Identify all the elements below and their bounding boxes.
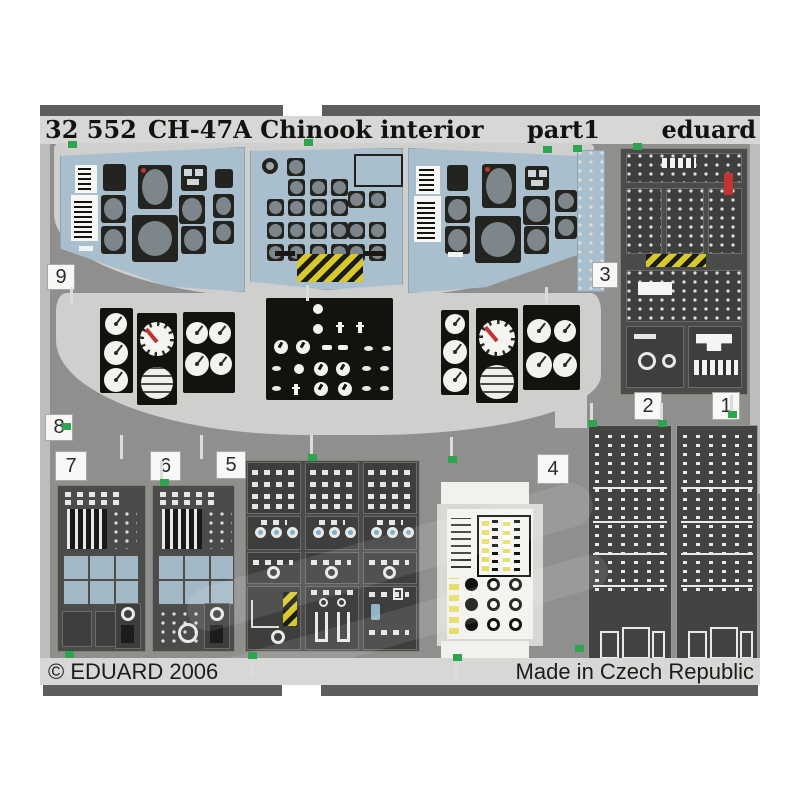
- vent-grille: [162, 509, 202, 549]
- plain-gauge: [104, 368, 128, 392]
- instrument-hole: [312, 181, 325, 194]
- origin-text: Made in Czech Republic: [516, 658, 754, 685]
- console-sub-panel: [62, 611, 92, 647]
- instrument-hole: [371, 193, 384, 206]
- symbol-notch: [318, 384, 324, 391]
- indicator-cluster: [208, 511, 232, 549]
- instrument-bezel: [475, 216, 521, 263]
- symbol-dial: [313, 304, 323, 314]
- attachment-tab-mark: [308, 454, 317, 461]
- instrument-hole: [312, 224, 325, 237]
- instrument-hole: [333, 201, 346, 214]
- fret-stem: [545, 287, 548, 303]
- instrument-hole: [104, 229, 123, 251]
- symbol-figure: [336, 325, 344, 327]
- part-number-tab-7: 7: [56, 452, 86, 480]
- switch-bank: [247, 462, 301, 514]
- instrument-hole: [333, 224, 346, 237]
- breaker-divider: [681, 553, 753, 555]
- instrument-bezel: [288, 179, 305, 196]
- rotary-knob: [313, 527, 324, 538]
- instrument-bezel: [331, 199, 348, 216]
- instrument-hole: [558, 193, 574, 209]
- attachment-tab-mark: [65, 651, 74, 658]
- gauge-hub: [453, 378, 457, 382]
- switch-row: [368, 494, 412, 499]
- gauge-hub: [114, 351, 118, 355]
- part-number-label: 7: [65, 455, 76, 477]
- instrument-hole: [527, 229, 546, 251]
- radio-window: [195, 169, 203, 176]
- attachment-tab-mark: [160, 479, 169, 486]
- fret-stem: [250, 663, 253, 677]
- instrument-bezel: [445, 196, 470, 223]
- plain-gauge: [526, 352, 552, 378]
- instrument-bezel: [101, 226, 126, 254]
- instrument-dial-strip: [441, 310, 469, 395]
- attachment-tab-mark: [62, 423, 71, 430]
- instrument-bezel: [524, 226, 549, 254]
- compass-gauge: [140, 322, 174, 356]
- attachment-tab-mark: [658, 420, 667, 427]
- instrument-bezel: [213, 194, 234, 218]
- placard-dial: [487, 618, 500, 631]
- attachment-tab-mark: [588, 420, 597, 427]
- connector-comb: [694, 360, 738, 375]
- symbol-mark: [364, 346, 373, 351]
- instrument-bezel: [348, 191, 365, 208]
- bottom-frame-bar-right: [321, 685, 758, 696]
- radio-window: [539, 170, 547, 177]
- instrument-hole: [182, 198, 202, 221]
- console-sub-panel: [626, 270, 742, 322]
- header-strip: 32 552 CH-47A Chinook interior part1 edu…: [40, 116, 760, 144]
- switch-bank: [305, 462, 359, 514]
- symbol-dial: [314, 362, 328, 376]
- switch-row: [368, 482, 412, 487]
- gauge-hub: [537, 329, 541, 333]
- instrument-bezel: [288, 199, 305, 216]
- label-bracket: [652, 631, 665, 659]
- instrument-hole: [526, 199, 547, 222]
- gauge-hub: [563, 329, 567, 333]
- footer-strip: © EDUARD 2006 Made in Czech Republic: [40, 658, 760, 685]
- switch-row: [310, 482, 354, 487]
- switch-bank: [247, 516, 301, 550]
- breaker-tick-field: [676, 431, 758, 596]
- instrument-bezel: [369, 222, 386, 239]
- knob-cluster: [115, 603, 141, 649]
- symbol-mark: [380, 366, 389, 371]
- radio-window: [184, 169, 192, 176]
- instrument-bezel: [555, 190, 577, 212]
- attachment-tab-mark: [543, 146, 552, 153]
- instrument-hole: [350, 224, 363, 237]
- copyright-text: © EDUARD 2006: [48, 658, 218, 685]
- breaker-divider: [593, 553, 667, 555]
- panel-outline: [354, 154, 403, 187]
- symbol-dial: [314, 382, 328, 396]
- instrument-bezel: [310, 179, 327, 196]
- instrument-bezel: [215, 169, 233, 188]
- gauge-hub: [563, 363, 567, 367]
- rotary-knob: [262, 158, 278, 174]
- label-bracket: [688, 631, 707, 659]
- plain-gauge: [210, 353, 232, 375]
- instrument-dial-strip: [183, 312, 235, 393]
- part-number-tab-9: 9: [48, 265, 74, 289]
- symbol-notch: [278, 342, 284, 349]
- part-number-label: 9: [55, 266, 66, 288]
- instrument-hole: [486, 168, 512, 204]
- instrument-bezel: [523, 196, 550, 225]
- switch-row: [252, 494, 296, 499]
- vent-grille: [67, 509, 107, 549]
- instrument-hole: [333, 181, 346, 194]
- symbol-dial: [294, 364, 304, 374]
- instrument-bezel: [310, 199, 327, 216]
- instrument-bezel: [445, 226, 470, 254]
- instrument-dial-strip: [476, 308, 518, 403]
- gauge-hub: [537, 363, 541, 367]
- knob-center: [332, 530, 337, 535]
- radio-window: [63, 555, 139, 605]
- part-number-tab-2: 2: [635, 393, 661, 419]
- knob-ring: [121, 607, 135, 621]
- indicator-cluster: [113, 511, 137, 549]
- switch-slot: [634, 334, 656, 339]
- product-photo: 32 552 CH-47A Chinook interior part1 edu…: [40, 105, 760, 695]
- part-number-label: 3: [599, 264, 610, 286]
- brand-logo: eduard: [662, 116, 756, 144]
- symbol-mark: [322, 345, 332, 350]
- window-grid: [183, 555, 185, 605]
- instrument-bezel: [447, 165, 468, 191]
- instrument-bezel: [555, 216, 577, 239]
- fret-stem: [306, 285, 309, 301]
- instrument-dial-strip: [523, 305, 580, 390]
- instrument-bezel: [179, 195, 205, 224]
- catalog-number: 32 552: [45, 116, 137, 144]
- placard-dial: [509, 618, 522, 631]
- switch-row: [319, 520, 345, 525]
- switch-row: [368, 504, 412, 509]
- warning-dot: [141, 168, 146, 173]
- toggle-switch-row: [662, 158, 696, 168]
- console-sub-panel: [688, 326, 742, 388]
- instrument-hole: [184, 229, 203, 251]
- plain-gauge: [443, 368, 467, 392]
- console-sub-panel: [666, 188, 704, 254]
- attachment-tab-mark: [304, 139, 313, 146]
- instrument-hole: [142, 169, 168, 205]
- gauge-hub: [218, 331, 222, 335]
- plain-gauge: [553, 353, 577, 377]
- instrument-hole: [290, 224, 303, 237]
- compass-gauge: [479, 320, 515, 356]
- rotary-knob: [255, 527, 266, 538]
- fret-stem: [455, 665, 458, 679]
- label-bracket: [600, 631, 619, 659]
- console-sub-panel: [708, 188, 742, 254]
- overhead-console-panel: [620, 148, 748, 395]
- attachment-tab-mark: [453, 654, 462, 661]
- window-grid: [88, 555, 90, 605]
- attachment-tab-mark: [575, 645, 584, 652]
- symbol-figure: [338, 322, 342, 333]
- slider-row: [65, 500, 123, 505]
- switch-row: [377, 520, 403, 525]
- part-number-tab-6: 6: [151, 452, 180, 480]
- window-grid: [63, 579, 139, 581]
- breaker-divider: [681, 585, 753, 587]
- label-bracket: [740, 631, 753, 659]
- slider-row: [160, 492, 218, 497]
- data-placard: [416, 166, 440, 194]
- part-number-label: 2: [642, 395, 653, 417]
- warning-lever: [724, 173, 733, 195]
- data-placard: [414, 196, 441, 242]
- instrument-dial-strip: [137, 313, 177, 405]
- placard-strip: [275, 251, 295, 256]
- plain-gauge: [185, 352, 209, 376]
- attachment-tab-mark: [248, 652, 257, 659]
- breaker-divider: [593, 585, 667, 587]
- instrument-hole: [216, 197, 231, 215]
- instrument-bezel: [310, 222, 327, 239]
- horizon-gauge: [141, 367, 173, 399]
- instrument-hole: [269, 201, 282, 214]
- product-title: CH-47A Chinook interior: [148, 116, 484, 144]
- fret-stem: [67, 663, 70, 677]
- switch-row: [310, 470, 354, 475]
- knob-ring: [337, 598, 346, 607]
- console-panel-7: [57, 485, 146, 652]
- symbol-mark: [362, 386, 371, 391]
- symbol-notch: [340, 364, 346, 371]
- part-number-label: 5: [225, 454, 236, 476]
- switch-bank: [363, 462, 417, 514]
- data-placard: [75, 165, 97, 193]
- knob-center: [258, 530, 263, 535]
- symbol-mark: [380, 386, 389, 391]
- knob-ring: [662, 354, 676, 368]
- rotary-knob: [287, 527, 298, 538]
- breaker-divider: [593, 521, 667, 523]
- symbol-dial: [296, 340, 310, 354]
- symbol-dial: [313, 324, 323, 334]
- plain-gauge: [209, 322, 231, 344]
- fret-stem: [200, 435, 203, 459]
- gauge-hub: [453, 322, 457, 326]
- instrument-hole: [558, 219, 574, 236]
- radio-window: [528, 170, 536, 177]
- part-number-label: 4: [547, 458, 558, 480]
- gauge-hub: [114, 322, 118, 326]
- instrument-bezel: [132, 215, 178, 262]
- switch-slot: [79, 246, 93, 251]
- plain-gauge: [527, 319, 551, 343]
- instrument-bezel: [103, 164, 126, 191]
- knob-center: [290, 530, 295, 535]
- knob-center: [316, 530, 321, 535]
- part-number-tab-3: 3: [593, 263, 617, 287]
- instrument-hole: [448, 229, 467, 251]
- data-placard: [71, 195, 98, 241]
- console-sub-panel: [626, 326, 684, 388]
- switch-block: [121, 625, 134, 643]
- plain-gauge: [104, 341, 128, 365]
- switch-slot: [448, 252, 463, 257]
- switch-row: [252, 504, 296, 509]
- instrument-bezel: [267, 199, 284, 216]
- placard-strip: [364, 251, 386, 256]
- knob-center: [348, 530, 353, 535]
- instrument-hole: [448, 199, 467, 220]
- fret-edge-left: [40, 144, 50, 658]
- symbol-notch: [342, 384, 348, 391]
- instrument-hole: [481, 222, 515, 257]
- window-grid: [114, 555, 116, 605]
- part-label: part1: [527, 116, 600, 144]
- symbol-mark: [362, 366, 371, 371]
- plain-gauge: [445, 314, 465, 334]
- part-number-tab-4: 4: [538, 455, 568, 483]
- fret-stem: [120, 435, 123, 459]
- symbol-notch: [318, 364, 324, 371]
- symbol-dial: [338, 382, 352, 396]
- radio-window: [531, 180, 543, 186]
- instrument-hole: [216, 224, 231, 241]
- breaker-divider: [593, 487, 667, 489]
- instrument-hole: [312, 201, 325, 214]
- hazard-stripe: [297, 254, 363, 282]
- instrument-hole: [350, 193, 363, 206]
- instrument-bezel: [288, 222, 305, 239]
- plain-gauge: [105, 313, 127, 335]
- window-grid: [158, 579, 234, 581]
- switch-row: [261, 520, 287, 525]
- part-number-tab-5: 5: [217, 452, 245, 478]
- instrument-hole: [269, 224, 282, 237]
- breaker-divider: [681, 487, 753, 489]
- horizon-gauge: [480, 365, 514, 399]
- instrument-bezel: [331, 222, 348, 239]
- slider-row: [65, 492, 123, 497]
- instrument-hole: [289, 160, 303, 174]
- warning-dot: [485, 167, 490, 172]
- instrument-bezel: [525, 166, 549, 190]
- switch-row: [310, 494, 354, 499]
- label-bracket: [710, 627, 738, 659]
- gauge-hub: [219, 362, 223, 366]
- instrument-hole: [290, 201, 303, 214]
- circuit-breaker-panel-right: [676, 425, 758, 690]
- attachment-tab-mark: [573, 145, 582, 152]
- gauge-hub: [453, 350, 457, 354]
- connector-notch: [696, 334, 732, 351]
- instrument-bezel: [213, 221, 234, 244]
- symbol-mark: [338, 345, 348, 350]
- switch-row: [369, 592, 409, 597]
- bracket: [393, 588, 403, 600]
- instrument-bezel: [287, 158, 305, 176]
- symbol-figure: [294, 384, 298, 395]
- symbol-figure: [292, 387, 300, 389]
- label-window: [638, 282, 672, 295]
- rotary-knob: [271, 527, 282, 538]
- instrument-symbol-sheet: [266, 298, 393, 400]
- horizon-lines: [141, 367, 173, 399]
- instrument-bezel: [331, 179, 348, 196]
- knob-ring: [638, 352, 656, 370]
- symbol-mark: [272, 386, 281, 391]
- knob-center: [274, 530, 279, 535]
- instrument-hole: [104, 198, 123, 220]
- instrument-bezel: [138, 165, 172, 209]
- symbol-mark: [382, 346, 391, 351]
- label-bracket: [622, 627, 650, 659]
- console-sub-panel: [626, 188, 662, 254]
- plain-gauge: [443, 340, 467, 364]
- switch-row: [310, 504, 354, 509]
- instrument-bezel: [369, 191, 386, 208]
- instrument-bezel: [348, 222, 365, 239]
- symbol-dial: [336, 362, 350, 376]
- attachment-tab-mark: [728, 411, 737, 418]
- plain-gauge: [554, 320, 576, 342]
- switch-row: [368, 470, 412, 475]
- instrument-bezel: [482, 164, 516, 208]
- horizon-lines: [480, 365, 514, 399]
- symbol-mark: [272, 366, 281, 371]
- knob-center: [374, 530, 379, 535]
- instrument-bezel: [181, 226, 206, 254]
- radio-window: [187, 179, 199, 185]
- instrument-bezel: [101, 195, 126, 223]
- switch-row: [252, 470, 296, 475]
- symbol-dial: [274, 340, 288, 354]
- attachment-tab-mark: [68, 141, 77, 148]
- attachment-tab-mark: [633, 143, 642, 150]
- attachment-tab-mark: [448, 456, 457, 463]
- switch-row: [252, 482, 296, 487]
- instrument-hole: [138, 221, 172, 256]
- fret-stem: [70, 287, 73, 305]
- slider-row: [160, 500, 218, 505]
- breaker-divider: [681, 521, 753, 523]
- cockpit-panel-center: [250, 148, 403, 290]
- rotary-knob: [329, 527, 340, 538]
- instrument-hole: [290, 181, 303, 194]
- symbol-notch: [300, 342, 306, 349]
- instrument-dial-strip: [100, 308, 133, 393]
- instrument-bezel: [181, 165, 207, 191]
- instrument-bezel: [267, 222, 284, 239]
- rotary-knob: [345, 527, 356, 538]
- symbol-figure: [358, 322, 362, 333]
- plain-gauge: [186, 322, 208, 344]
- symbol-figure: [356, 325, 364, 327]
- bottom-frame-bar-left: [43, 685, 282, 696]
- gauge-hub: [195, 331, 199, 335]
- hazard-stripe: [646, 254, 706, 267]
- instrument-hole: [371, 224, 384, 237]
- gauge-hub: [195, 362, 199, 366]
- gauge-hub: [114, 378, 118, 382]
